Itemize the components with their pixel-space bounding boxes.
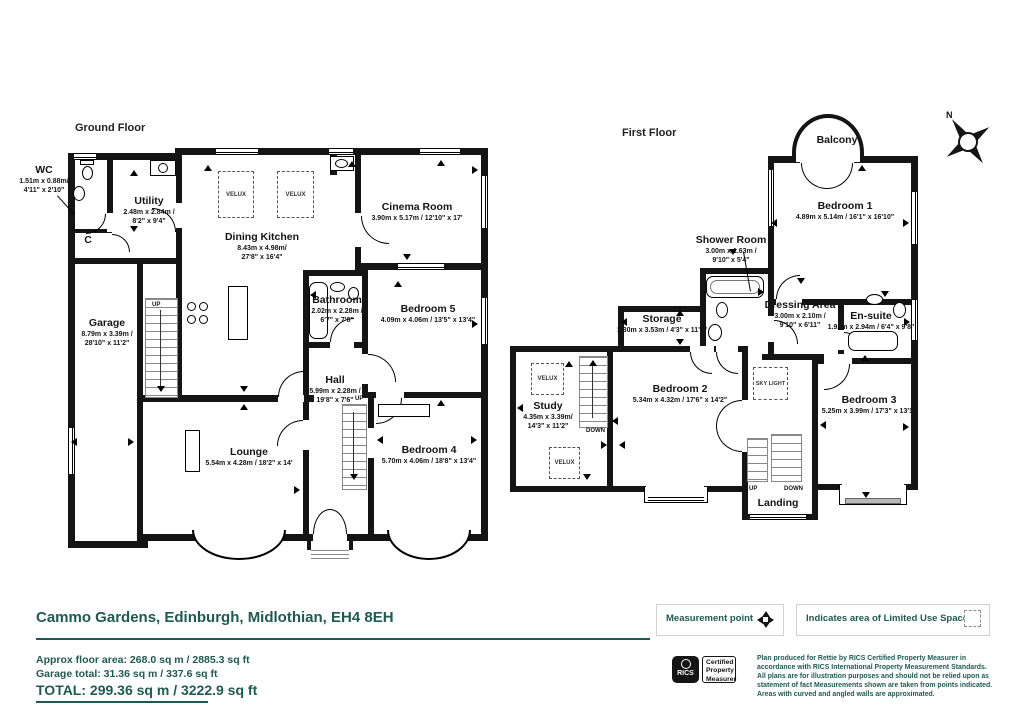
wall <box>307 534 311 550</box>
room-label-bedroom3: Bedroom 3 5.25m x 3.99m / 17'3" x 13'1" <box>822 394 916 416</box>
measurement-arrow-icon <box>676 339 684 345</box>
room-label-wc: WC 1.51m x 0.88m/ 4'11" x 2'10" <box>19 164 68 195</box>
limited-use-swatch-icon <box>964 610 981 627</box>
measurement-arrow-icon <box>377 436 383 444</box>
velux-window: VELUX <box>218 171 254 218</box>
address: Cammo Gardens, Edinburgh, Midlothian, EH… <box>36 609 394 626</box>
wall <box>700 268 774 274</box>
room-label-cinema-room: Cinema Room 3.90m x 5.17m / 12'10" x 17' <box>371 201 462 223</box>
staircase <box>579 356 608 428</box>
wardrobe <box>378 404 430 417</box>
room-label-lounge: Lounge 5.54m x 4.28m / 18'2" x 14' <box>205 446 292 468</box>
room-label-hall: Hall 5.99m x 2.28m / 19'8" x 7'6" <box>309 374 360 405</box>
measurement-point-label: Measurement point <box>666 613 753 624</box>
window <box>481 176 488 228</box>
kitchen-sink-bowl <box>335 159 348 168</box>
ground-floor-title: Ground Floor <box>75 122 145 134</box>
wall <box>911 358 918 490</box>
certified-property-measurer-badge: Certified Property Measurer <box>702 656 736 683</box>
door-gap <box>313 534 347 541</box>
window <box>481 298 488 344</box>
rics-logo: RICS <box>672 656 699 683</box>
measurement-arrow-icon <box>130 170 138 176</box>
staircase <box>747 438 768 482</box>
lounge-furniture <box>185 430 200 472</box>
stair-arrow-icon <box>350 474 358 480</box>
door-gap <box>800 156 854 163</box>
measurement-arrow-icon <box>472 166 478 174</box>
window <box>329 148 353 155</box>
limited-use-label: Indicates area of Limited Use Space <box>806 613 968 624</box>
window <box>768 170 774 226</box>
measurement-arrow-icon <box>517 404 523 412</box>
measurement-arrow-icon <box>240 386 248 392</box>
measurement-arrow-icon <box>348 161 356 167</box>
window <box>68 428 75 474</box>
shower-bath-inner <box>710 280 760 294</box>
stair-arrow-icon <box>157 386 165 392</box>
measurement-arrow-icon <box>903 423 909 431</box>
measurement-arrow-icon <box>204 165 212 171</box>
measurement-arrow-icon <box>621 318 627 326</box>
measurement-arrow-icon <box>240 404 248 410</box>
door-arc <box>716 352 738 374</box>
wall <box>510 486 748 492</box>
wall <box>510 346 516 492</box>
garage-total: Garage total: 31.36 sq m / 337.6 sq ft <box>36 668 218 680</box>
room-label-garage: Garage 8.79m x 3.39m / 28'10" x 11'2" <box>81 317 132 348</box>
velux-window: VELUX <box>531 363 564 395</box>
sink-icon <box>708 324 722 341</box>
room-label-dining-kitchen: Dining Kitchen 8.43m x 4.98m/ 27'8" x 16… <box>225 231 299 262</box>
room-label-bedroom4: Bedroom 4 5.70m x 4.06m / 18'8" x 13'4" <box>382 444 476 466</box>
stairs-down-label: DOWN <box>586 428 605 434</box>
measurement-arrow-icon <box>758 288 764 296</box>
bay-window <box>387 530 471 560</box>
toilet-icon <box>82 166 93 180</box>
kitchen-island <box>228 286 248 340</box>
door-gap <box>330 342 354 348</box>
wall <box>368 398 374 534</box>
measurement-arrow-icon <box>862 492 870 498</box>
door-arc <box>716 426 742 452</box>
measurement-point-icon <box>757 611 773 627</box>
measurement-arrow-icon <box>797 278 805 284</box>
door-arc <box>368 354 396 382</box>
room-label-balcony: Balcony <box>817 134 858 147</box>
rics-logo-text: RICS <box>672 670 699 677</box>
measurement-arrow-icon <box>601 441 607 449</box>
hob-ring <box>187 315 196 324</box>
room-label-utility: Utility 2.48m x 2.84m / 8'2" x 9'4" <box>123 195 174 226</box>
stair-arrow-line <box>160 310 161 386</box>
door-gap <box>176 203 182 228</box>
toilet-icon <box>716 302 728 318</box>
measurement-arrow-icon <box>861 355 869 361</box>
wall <box>107 153 113 215</box>
entrance-steps <box>311 550 349 551</box>
divider-line <box>36 638 650 640</box>
hob-ring <box>199 302 208 311</box>
wall <box>68 541 148 548</box>
measurement-arrow-icon <box>903 219 909 227</box>
door-arc <box>801 163 827 189</box>
wall <box>618 306 706 312</box>
compass-icon: N <box>933 104 1003 174</box>
entrance-steps <box>311 554 349 555</box>
measurement-arrow-icon <box>310 291 316 299</box>
measurement-arrow-icon <box>904 318 910 326</box>
bay-window <box>192 530 286 560</box>
measurement-arrow-icon <box>676 310 684 316</box>
measurement-arrow-icon <box>619 441 625 449</box>
room-label-cupboard: C <box>84 234 92 247</box>
toilet-cistern <box>80 160 94 165</box>
sink-icon <box>330 282 345 292</box>
stairs-down-label: DOWN <box>784 486 803 492</box>
measurement-arrow-icon <box>128 438 134 446</box>
door-gap <box>368 428 374 458</box>
divider-line <box>36 701 208 703</box>
window <box>398 263 444 270</box>
wall <box>303 270 368 276</box>
first-floor-title: First Floor <box>622 127 676 139</box>
room-label-bathroom: Bathroom 2.02m x 2.28m / 6'7" x 7'6" <box>311 294 362 325</box>
staircase <box>145 298 178 398</box>
measurement-arrow-icon <box>565 361 573 367</box>
door-arc <box>690 352 712 374</box>
wall <box>812 490 818 520</box>
stairs-up-label: UP <box>749 486 757 492</box>
velux-window: VELUX <box>277 171 314 218</box>
measurement-arrow-icon <box>71 438 77 446</box>
staircase <box>771 434 802 482</box>
window <box>420 148 460 155</box>
hob-ring <box>199 315 208 324</box>
window <box>750 514 806 520</box>
measurement-arrow-icon <box>820 421 826 429</box>
utility-sink <box>158 163 168 173</box>
door-arc <box>277 420 303 446</box>
door-gap <box>303 420 309 450</box>
room-label-ensuite: En-suite 1.92m x 2.94m / 6'4" x 9'8" <box>828 310 915 332</box>
measurement-arrow-icon <box>472 320 478 328</box>
window <box>648 497 704 503</box>
measurement-arrow-icon <box>612 417 618 425</box>
window <box>911 192 918 244</box>
total-area: TOTAL: 299.36 sq m / 3222.9 sq ft <box>36 682 257 698</box>
room-label-bedroom2: Bedroom 2 5.34m x 4.32m / 17'6" x 14'2" <box>633 383 727 405</box>
wall <box>68 258 182 264</box>
door-arc <box>827 163 853 189</box>
entrance-steps <box>311 558 349 559</box>
room-label-study: Study 4.35m x 3.39m/ 14'3" x 11'2" <box>523 400 572 431</box>
sink-icon <box>73 186 85 201</box>
measurement-arrow-icon <box>881 291 889 297</box>
stairs-up-label: UP <box>152 302 160 308</box>
room-label-landing: Landing <box>758 497 799 510</box>
velux-window: VELUX <box>549 447 580 479</box>
measurement-arrow-icon <box>130 226 138 232</box>
measurement-arrow-icon <box>294 486 300 494</box>
disclaimer-text: Plan produced for Rettie by RICS Certifi… <box>757 654 993 700</box>
stair-arrow-line <box>353 412 354 476</box>
window <box>216 148 258 155</box>
rics-lion-icon <box>681 659 691 669</box>
measurement-arrow-icon <box>583 474 591 480</box>
approx-floor-area: Approx floor area: 268.0 sq m / 2885.3 s… <box>36 654 250 666</box>
measurement-arrow-icon <box>471 436 477 444</box>
door-arc <box>313 509 330 534</box>
room-label-dressing-area: Dressing Area 3.00m x 2.10m / 9'10" x 6'… <box>765 299 836 330</box>
skylight: SKY LIGHT <box>753 367 788 400</box>
wall <box>349 534 353 550</box>
measurement-arrow-icon <box>437 160 445 166</box>
measurement-arrow-icon <box>394 281 402 287</box>
room-label-bedroom1: Bedroom 1 4.89m x 5.14m / 16'1" x 16'10" <box>796 200 894 222</box>
window <box>74 153 96 160</box>
hob-ring <box>187 302 196 311</box>
room-label-bedroom5: Bedroom 5 4.09m x 4.06m / 13'5" x 13'4" <box>381 303 475 325</box>
compass-north-label: N <box>946 110 953 120</box>
measurement-arrow-icon <box>403 254 411 260</box>
room-label-storage: Storage 1.30m x 3.53m / 4'3" x 11'7" <box>617 313 707 335</box>
door-arc <box>330 509 347 534</box>
stair-arrow-line <box>592 362 593 418</box>
measurement-arrow-icon <box>729 249 737 255</box>
measurement-arrow-icon <box>858 165 866 171</box>
bathtub-icon <box>848 331 898 351</box>
window <box>845 498 901 504</box>
measurement-arrow-icon <box>771 219 777 227</box>
stair-arrow-icon <box>589 360 597 366</box>
door-arc <box>112 234 130 252</box>
wall <box>137 264 143 541</box>
door-arc <box>278 371 304 397</box>
door-gap <box>107 213 113 232</box>
floorplan-page: Ground Floor First Floor N <box>0 0 1024 723</box>
wall <box>812 358 818 490</box>
measurement-arrow-icon <box>437 400 445 406</box>
door-arc <box>824 364 850 390</box>
